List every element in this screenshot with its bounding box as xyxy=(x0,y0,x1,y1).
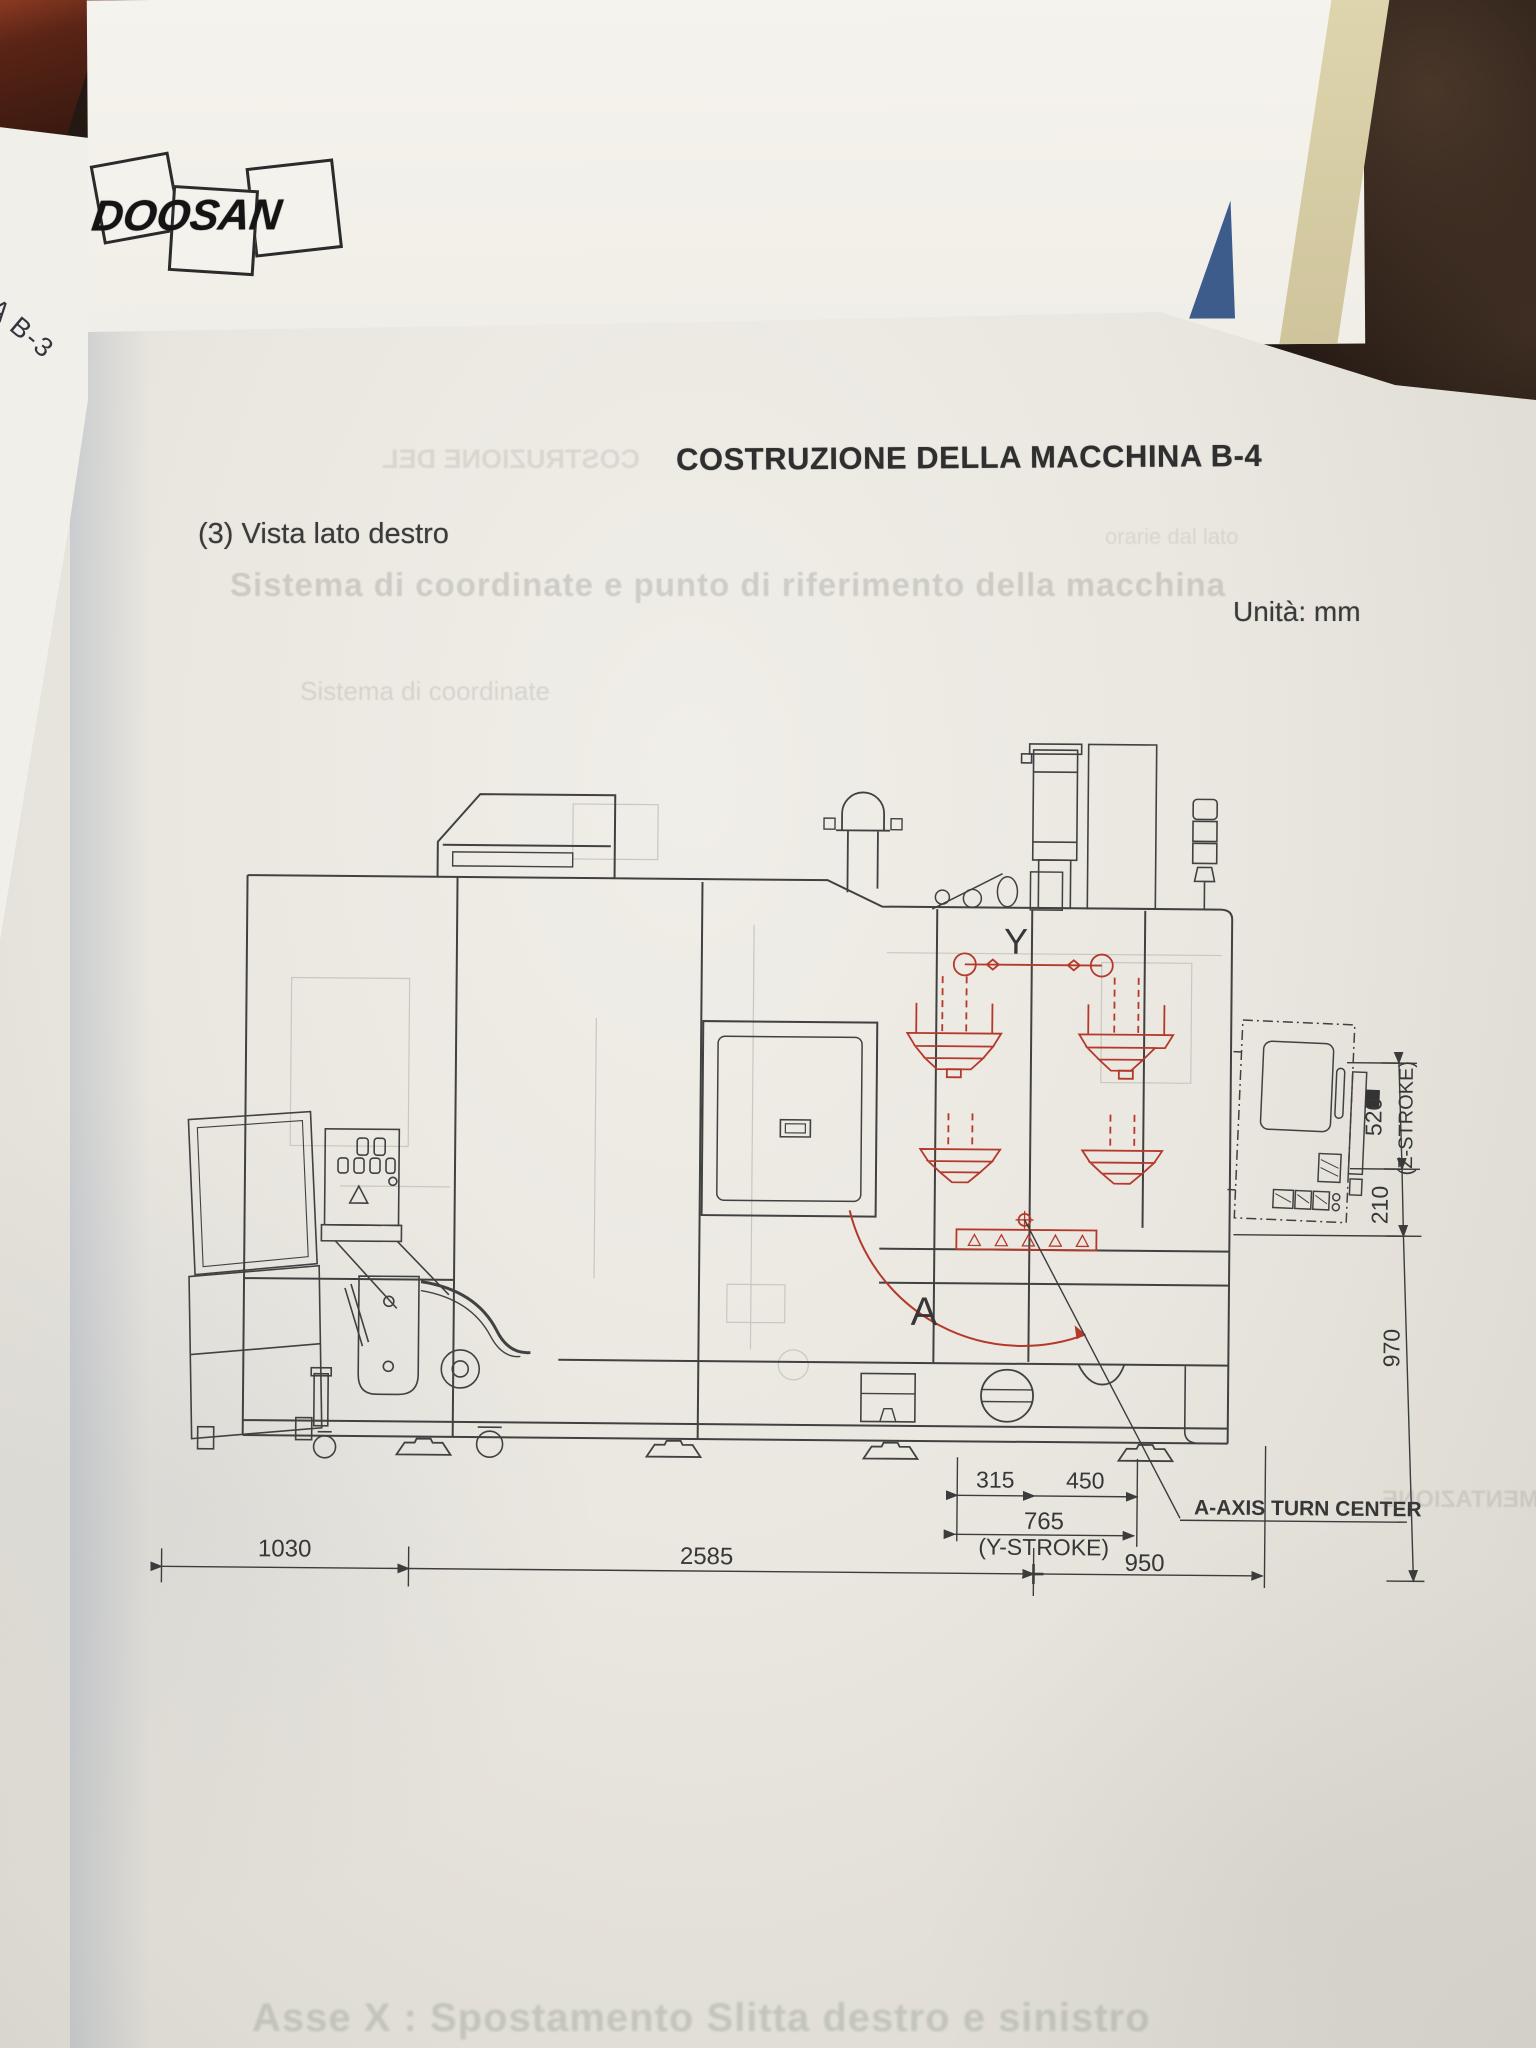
underlying-page-spine-text: HINA B-3 xyxy=(0,259,60,365)
units-label: Unità: mm xyxy=(1233,596,1361,628)
dim-y-stroke: (Y-STROKE) xyxy=(978,1533,1109,1560)
dim-970: 970 xyxy=(1378,1329,1404,1368)
left-equipment xyxy=(185,1111,532,1460)
blue-triangle-graphic xyxy=(1188,200,1235,318)
dim-1030: 1030 xyxy=(258,1535,312,1562)
signal-tower xyxy=(1192,799,1217,909)
dim-450: 450 xyxy=(1066,1467,1105,1493)
operator-pendant xyxy=(1226,1020,1382,1224)
page-cut-edge xyxy=(1279,0,1390,344)
ghost-text: orarie dal lato xyxy=(1105,524,1238,550)
bleed-through-lines xyxy=(288,801,1223,1383)
y-axis-label: Y xyxy=(1004,921,1028,962)
section-label: (3) Vista lato destro xyxy=(198,518,449,551)
a-axis-note: A-AXIS TURN CENTER xyxy=(1194,1496,1422,1521)
a-axis-label: A xyxy=(911,1290,938,1334)
door-window xyxy=(702,1021,878,1217)
dim-950: 950 xyxy=(1124,1550,1164,1577)
doosan-logo: DOOSAN xyxy=(90,147,351,304)
photo-of-manual-page: HINA B-3 ità: mm DOOSAN TRODUZIONE COSTR… xyxy=(0,0,1536,2048)
caster-wheel xyxy=(476,1431,502,1457)
dim-z-stroke: (Z-STROKE) xyxy=(1395,1061,1418,1176)
spindle-cone-red xyxy=(906,1033,1173,1184)
ghost-heading: Sistema di coordinate e punto di riferim… xyxy=(230,566,1226,604)
logo-wordmark: DOOSAN xyxy=(89,191,284,241)
dim-315: 315 xyxy=(976,1466,1015,1492)
dim-2585: 2585 xyxy=(680,1543,734,1570)
machine-side-view-drawing: Y A A-AXIS TURN CENTER 1030 2585 950 315… xyxy=(136,714,1484,1626)
ghost-text: Sistema di coordinate xyxy=(300,676,550,707)
caster-wheel xyxy=(313,1436,335,1458)
warning-triangle-icon xyxy=(350,1186,368,1203)
red-axis-overlay xyxy=(848,952,1173,1347)
spindle-motor xyxy=(1020,744,1156,909)
dim-210: 210 xyxy=(1367,1186,1393,1225)
dim-765: 765 xyxy=(1024,1508,1064,1535)
dim-520: 520 xyxy=(1360,1098,1386,1137)
page-title: COSTRUZIONE DELLA MACCHINA B-4 xyxy=(676,438,1262,478)
machine-outline xyxy=(243,737,1234,1462)
lifting-eye xyxy=(835,792,890,892)
pump xyxy=(441,1350,479,1388)
pendant-screen xyxy=(1260,1041,1334,1132)
ghost-bottom-paragraph: Asse X : Spostamento Slitta destro e sin… xyxy=(252,1996,1151,2041)
ghost-text-mirrored: COSTRUZIONE DEL xyxy=(140,444,640,475)
underlying-page-top: DOOSAN xyxy=(87,0,1365,352)
